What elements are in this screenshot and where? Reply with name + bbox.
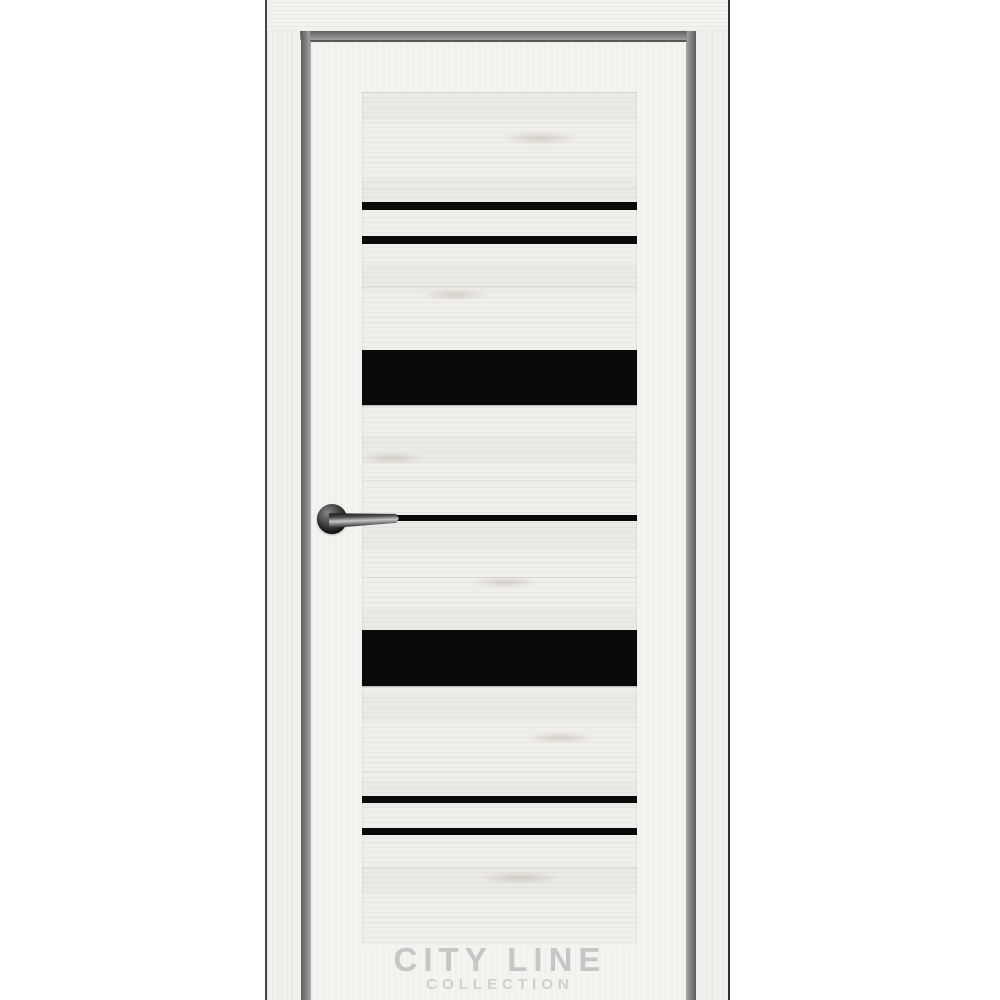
handle-lever-icon [329, 511, 399, 528]
glass-insert-thin-stripe [362, 828, 637, 835]
glass-insert-wide-panel [362, 350, 637, 405]
glass-insert-thin-stripe [362, 796, 637, 803]
product-image: CITY LINE COLLECTION [0, 0, 1000, 1000]
glass-insert-thin-stripe [362, 236, 637, 244]
glass-insert-wide-panel [362, 630, 637, 686]
glass-layer [0, 0, 1000, 1000]
glass-insert-thin-stripe [362, 202, 637, 210]
glass-insert-thin-stripe [362, 515, 637, 521]
door-handle [316, 502, 402, 538]
